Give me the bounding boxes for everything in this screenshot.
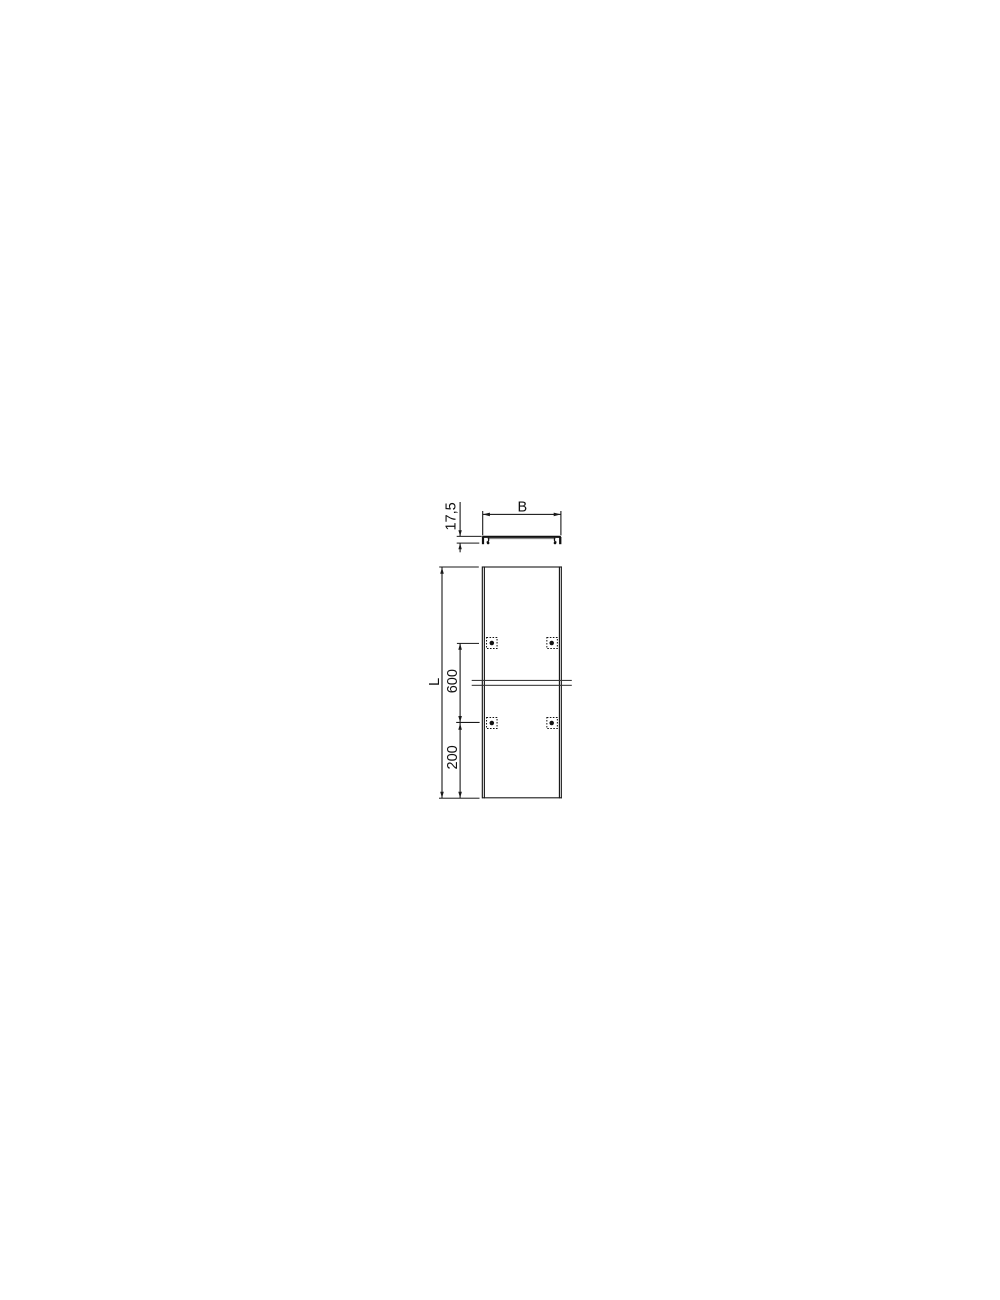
svg-text:600: 600	[445, 669, 461, 693]
svg-text:17,5: 17,5	[444, 502, 460, 530]
svg-text:L: L	[427, 678, 443, 686]
svg-text:B: B	[517, 499, 527, 515]
svg-text:200: 200	[445, 745, 461, 769]
